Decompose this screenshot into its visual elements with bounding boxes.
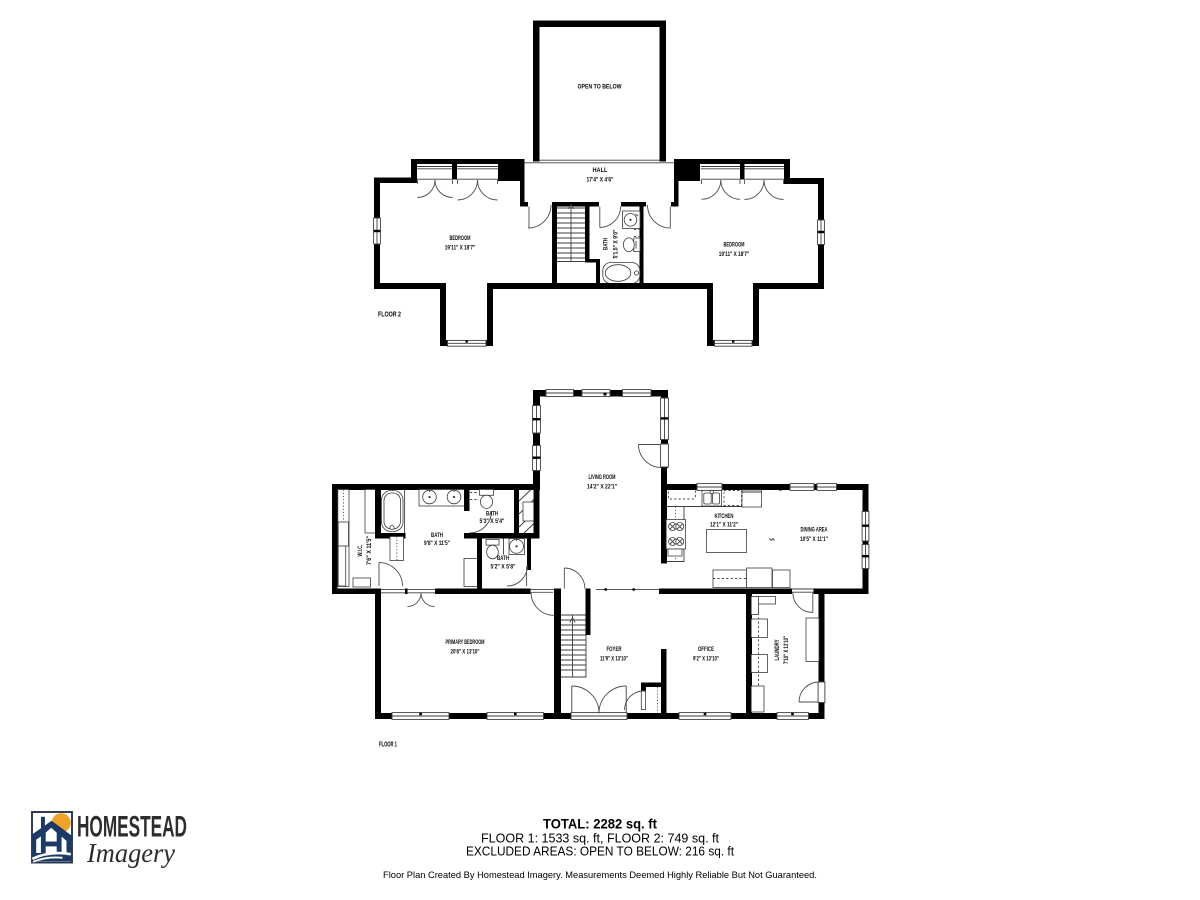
svg-text:5'3" X 5'4": 5'3" X 5'4" — [480, 518, 505, 525]
svg-text:14'2" X 22'1": 14'2" X 22'1" — [587, 483, 617, 490]
svg-text:FLOOR 2: FLOOR 2 — [378, 312, 401, 319]
svg-text:7'10" X 13'10": 7'10" X 13'10" — [783, 636, 790, 664]
svg-text:7'6" X 11'5": 7'6" X 11'5" — [366, 536, 373, 565]
svg-text:12'1" X 11'2": 12'1" X 11'2" — [710, 521, 738, 528]
svg-text:BATH: BATH — [431, 532, 443, 539]
svg-text:BATH: BATH — [603, 238, 610, 250]
svg-text:OPEN TO BELOW: OPEN TO BELOW — [578, 84, 623, 91]
svg-text:OFFICE: OFFICE — [698, 646, 714, 653]
svg-text:11'9" X 13'10": 11'9" X 13'10" — [600, 655, 628, 662]
svg-text:LIVING ROOM: LIVING ROOM — [589, 474, 616, 481]
svg-text:HALL: HALL — [593, 167, 608, 174]
svg-text:LAUNDRY: LAUNDRY — [774, 639, 781, 660]
svg-text:9'8" X 11'5": 9'8" X 11'5" — [424, 540, 450, 547]
svg-text:19'11" X 18'7": 19'11" X 18'7" — [719, 251, 750, 258]
svg-text:PRIMARY BEDROOM: PRIMARY BEDROOM — [446, 639, 485, 646]
svg-text:10'5" X 11'1": 10'5" X 11'1" — [800, 536, 828, 543]
svg-text:20'8" X 13'10": 20'8" X 13'10" — [451, 648, 480, 655]
svg-text:9'2" X 13'10": 9'2" X 13'10" — [693, 655, 719, 662]
svg-text:Floor Plan Created By Homestea: Floor Plan Created By Homestead Imagery.… — [383, 870, 817, 880]
svg-text:EXCLUDED AREAS: OPEN TO BELOW:: EXCLUDED AREAS: OPEN TO BELOW: 216 sq. f… — [466, 843, 734, 858]
svg-text:FLOOR 1: FLOOR 1 — [379, 742, 397, 749]
svg-text:BEDROOM: BEDROOM — [724, 242, 745, 249]
svg-text:17'4" X 4'6": 17'4" X 4'6" — [587, 176, 614, 183]
svg-text:BEDROOM: BEDROOM — [450, 235, 471, 242]
svg-text:W.I.C.: W.I.C. — [357, 544, 364, 556]
svg-text:Imagery: Imagery — [86, 838, 175, 868]
svg-text:TOTAL: 2282 sq. ft: TOTAL: 2282 sq. ft — [543, 817, 657, 832]
svg-text:BATH: BATH — [497, 555, 509, 562]
svg-text:FOYER: FOYER — [607, 646, 622, 653]
svg-text:5'2" X 5'8": 5'2" X 5'8" — [491, 563, 516, 570]
svg-text:DINING AREA: DINING AREA — [801, 526, 828, 533]
svg-text:5'1.5" X 9'0": 5'1.5" X 9'0" — [613, 230, 620, 259]
svg-text:BATH: BATH — [486, 510, 498, 517]
svg-text:KITCHEN: KITCHEN — [715, 513, 734, 520]
svg-text:19'11" X 18'7": 19'11" X 18'7" — [445, 244, 476, 251]
